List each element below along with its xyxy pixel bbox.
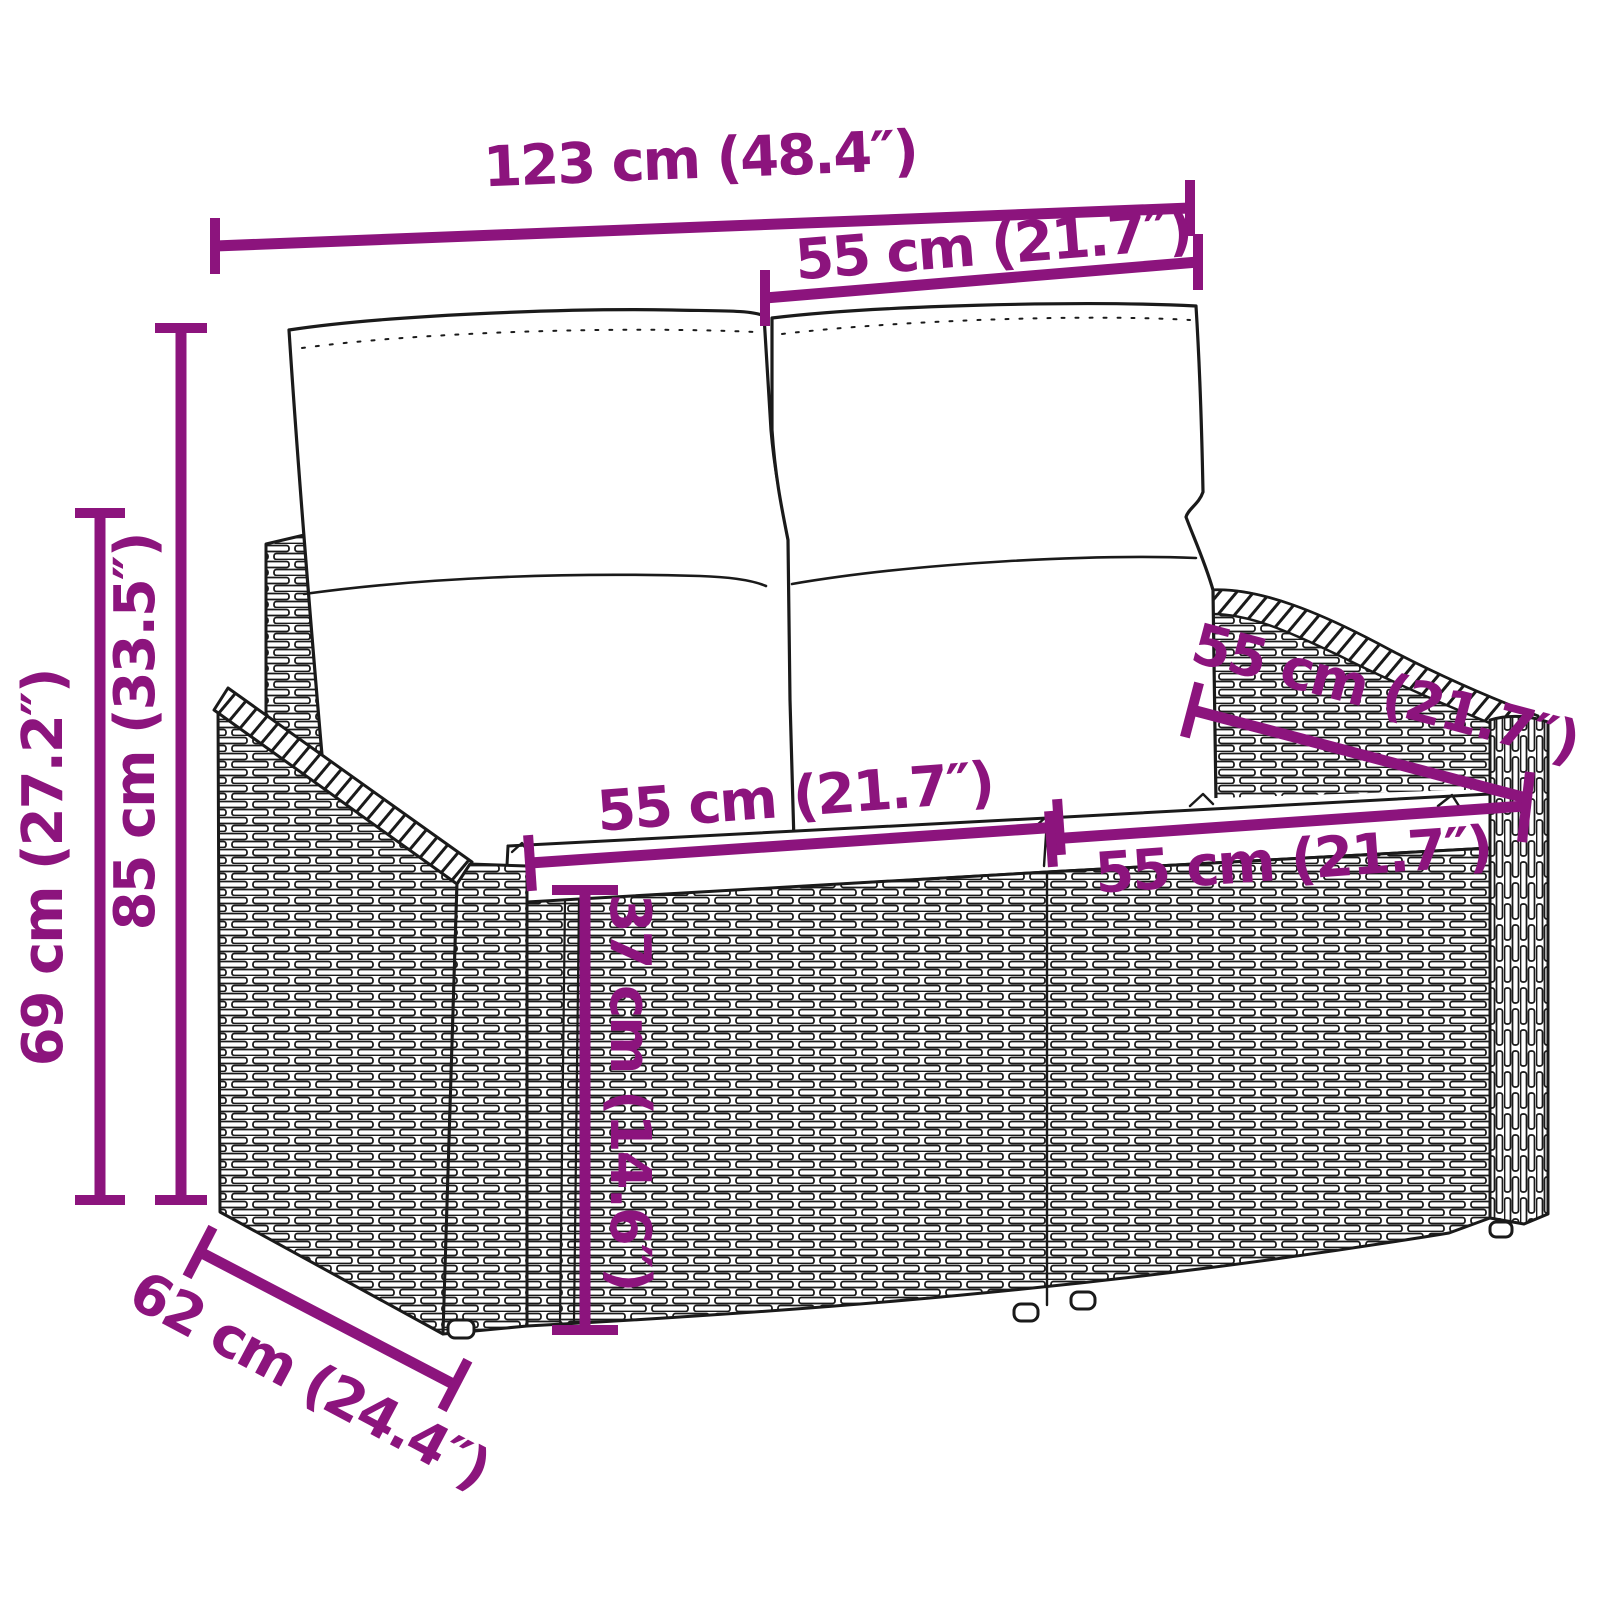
- dimension-diagram: 123 cm (48.4″) 55 cm (21.7″) 69 cm (27.2…: [0, 0, 1600, 1600]
- foot-middle-a: [1014, 1304, 1038, 1321]
- left-armrest-front-face: [443, 864, 527, 1334]
- base-front-face: [527, 848, 1490, 1326]
- foot-middle-b: [1071, 1292, 1095, 1309]
- foot-front-right: [1490, 1222, 1512, 1237]
- dim-label-height-69: 69 cm (27.2″): [16, 670, 72, 1067]
- dim-label-overall-width: 123 cm (48.4″): [482, 124, 918, 197]
- foot-front-left: [448, 1320, 474, 1338]
- dim-label-height-85: 85 cm (33.5″): [108, 534, 164, 931]
- dim-label-seat-height: 37 cm (14.6″): [601, 894, 657, 1291]
